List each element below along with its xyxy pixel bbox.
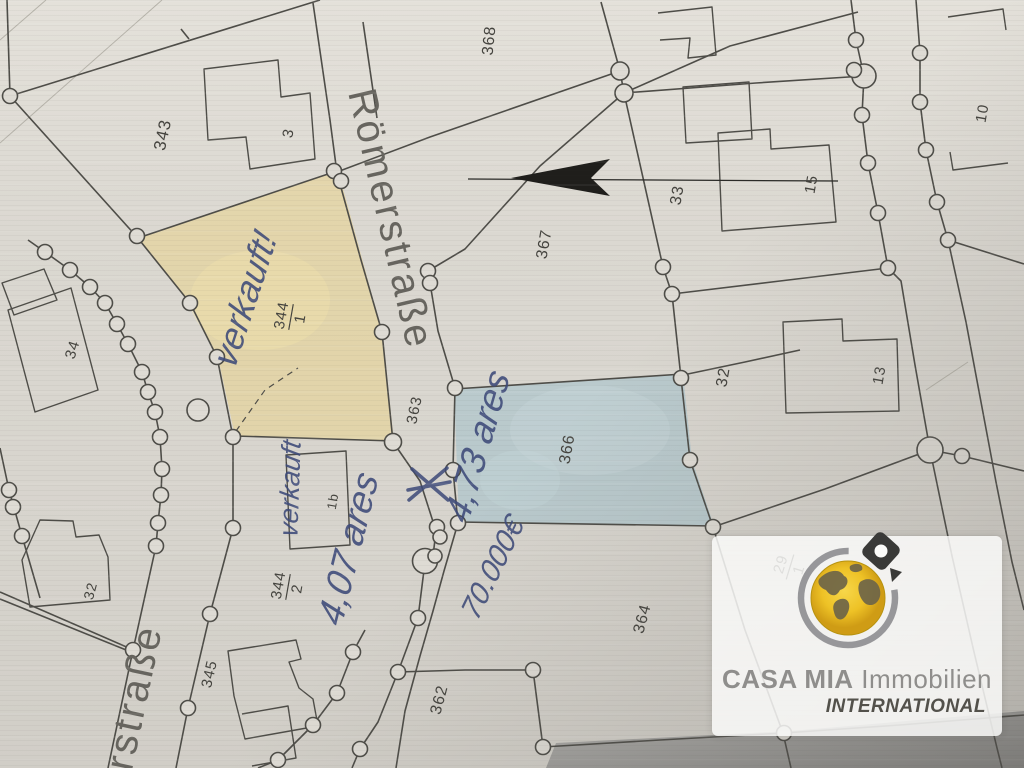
survey-point: [536, 740, 551, 755]
parcel-fraction-label: 3442: [268, 570, 308, 604]
survey-point: [526, 663, 541, 678]
survey-point: [941, 233, 956, 248]
survey-point: [155, 462, 170, 477]
survey-point: [153, 430, 168, 445]
survey-point: [861, 156, 876, 171]
survey-point: [428, 549, 442, 563]
survey-point: [683, 453, 698, 468]
map-label: 34: [62, 338, 84, 361]
map-label: 343: [150, 118, 175, 153]
casa-mia-logo-watermark: CASA MIA Immobilien INTERNATIONAL: [712, 536, 1002, 736]
survey-point: [611, 62, 629, 80]
survey-point: [83, 280, 98, 295]
survey-point: [930, 195, 945, 210]
handwritten-note: verkauft: [273, 436, 307, 539]
survey-point: [38, 245, 53, 260]
survey-point: [433, 530, 447, 544]
survey-point: [353, 742, 368, 757]
survey-point: [148, 405, 163, 420]
map-label: 32: [80, 580, 100, 601]
survey-point: [913, 46, 928, 61]
survey-point: [121, 337, 136, 352]
survey-point: [706, 520, 721, 535]
scanned-cadastral-map-page: Römerstraßerstraße3433368367331510321336…: [0, 0, 1024, 768]
survey-point: [226, 521, 241, 536]
map-label: 33: [667, 184, 687, 206]
survey-point: [203, 607, 218, 622]
survey-point: [881, 261, 896, 276]
handwritten-note: 4,07 ares: [310, 465, 386, 630]
survey-point: [187, 399, 209, 421]
survey-point: [151, 516, 166, 531]
map-label: 364: [631, 602, 655, 635]
survey-point: [141, 385, 156, 400]
survey-point: [385, 434, 402, 451]
logo-brand-text: CASA MIA: [722, 664, 854, 694]
map-label: 32: [713, 366, 733, 388]
survey-point: [917, 437, 943, 463]
survey-point: [183, 296, 198, 311]
map-label: 363: [403, 395, 425, 426]
survey-point: [110, 317, 125, 332]
globe-house-icon: [790, 538, 930, 668]
survey-point: [346, 645, 361, 660]
survey-point: [271, 753, 286, 768]
svg-text:2: 2: [288, 583, 306, 595]
logo-brand-suffix-text: Immobilien: [854, 664, 992, 694]
survey-point: [656, 260, 671, 275]
orbit-arrowhead-icon: [890, 568, 902, 582]
survey-point: [375, 325, 390, 340]
survey-point: [334, 174, 349, 189]
survey-point: [2, 483, 17, 498]
survey-point: [849, 33, 864, 48]
logo-wordmark: CASA MIA Immobilien: [712, 664, 1002, 695]
map-label: 10: [973, 103, 993, 124]
survey-point: [135, 365, 150, 380]
survey-point: [63, 263, 78, 278]
map-label: 367: [534, 228, 556, 260]
map-label: 362: [428, 683, 452, 716]
survey-point: [154, 488, 169, 503]
survey-point: [15, 529, 30, 544]
survey-point: [330, 686, 345, 701]
survey-point: [226, 430, 241, 445]
faint-scan-lines: [0, 0, 968, 390]
roof-icon-hole: [875, 545, 888, 558]
logo-subtitle-text: INTERNATIONAL: [826, 696, 986, 718]
map-label: 15: [802, 174, 822, 195]
survey-point: [448, 381, 463, 396]
survey-point: [306, 718, 321, 733]
map-label: 13: [870, 365, 890, 386]
survey-point: [3, 89, 18, 104]
survey-point: [181, 701, 196, 716]
survey-point: [919, 143, 934, 158]
survey-point: [674, 371, 689, 386]
survey-point: [855, 108, 870, 123]
survey-point: [149, 539, 164, 554]
survey-point: [871, 206, 886, 221]
map-label: 368: [480, 25, 500, 56]
survey-point: [6, 500, 21, 515]
survey-point: [955, 449, 970, 464]
survey-point: [98, 296, 113, 311]
survey-point: [665, 287, 680, 302]
survey-point: [130, 229, 145, 244]
survey-point: [411, 611, 426, 626]
survey-point: [615, 84, 633, 102]
survey-point: [847, 63, 862, 78]
survey-point: [391, 665, 406, 680]
handwritten-star-mark: [408, 468, 450, 500]
survey-point: [913, 95, 928, 110]
map-label: 345: [198, 658, 221, 689]
map-label: 3: [279, 127, 298, 140]
north-arrow: [468, 159, 838, 196]
